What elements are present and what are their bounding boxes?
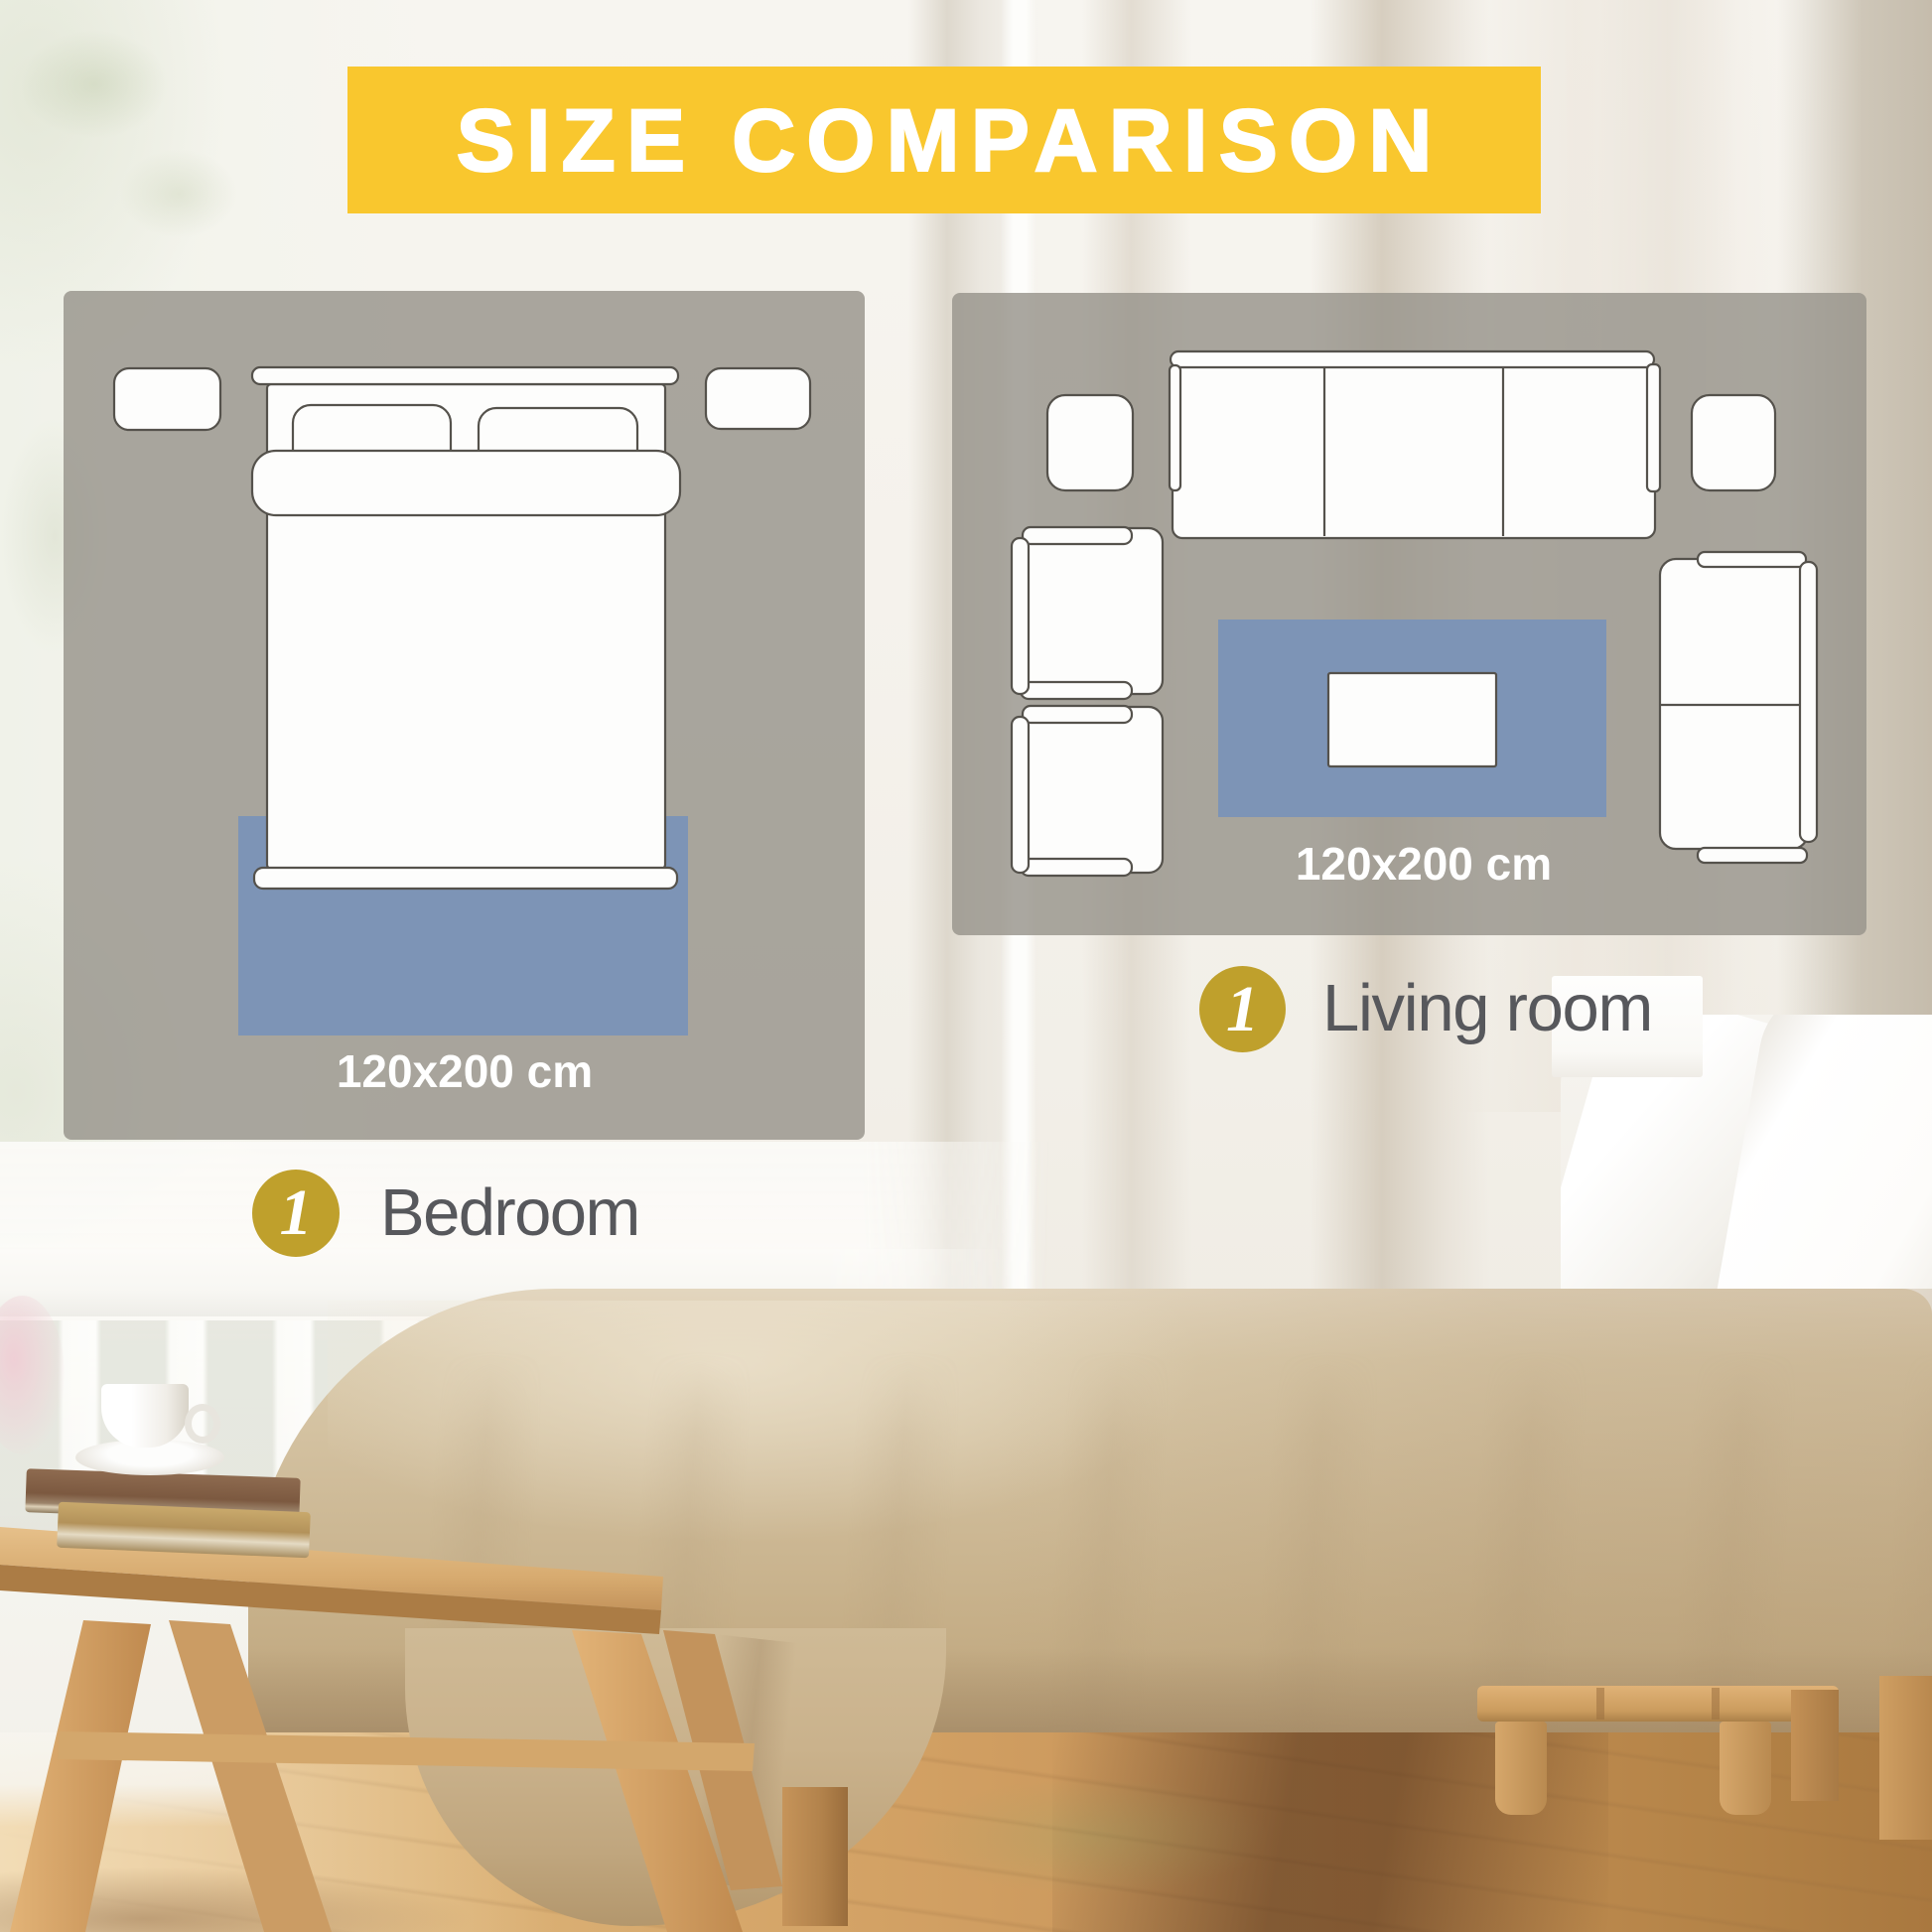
svg-text:120x200 cm: 120x200 cm [1296,838,1552,890]
svg-text:120x200 cm: 120x200 cm [337,1045,593,1097]
